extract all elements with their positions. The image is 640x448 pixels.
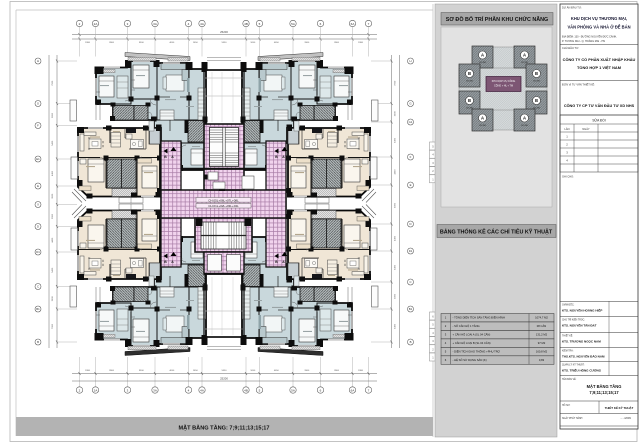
svg-text:4050: 4050: [274, 370, 280, 372]
svg-text:....../2009: ....../2009: [620, 416, 631, 420]
svg-text:5A: 5A: [291, 22, 295, 26]
svg-text:5400: 5400: [395, 264, 397, 270]
svg-text:4A: 4A: [200, 22, 204, 26]
svg-text:0,83: 0,83: [539, 358, 545, 362]
svg-text:X: X: [37, 203, 39, 207]
svg-text:F: F: [37, 124, 39, 128]
svg-text:1650: 1650: [193, 42, 199, 44]
svg-text:GIÁM ĐỐC:: GIÁM ĐỐC:: [562, 303, 575, 306]
svg-text:G: G: [409, 102, 411, 106]
svg-text:B: B: [535, 98, 538, 103]
svg-text:7;9;11;13;15;17: 7;9;11;13;15;17: [589, 390, 619, 395]
svg-text:5400: 5400: [395, 323, 397, 329]
svg-text:E1: E1: [36, 157, 40, 161]
svg-text:D: D: [409, 222, 411, 226]
svg-text:C: C: [409, 280, 411, 284]
svg-text:CHỦ TRÌ KIẾN TRÚC:: CHỦ TRÌ KIẾN TRÚC:: [562, 319, 585, 322]
svg-text:VĂN PHÒNG VÀ NHÀ Ở ĐỂ BÁN: VĂN PHÒNG VÀ NHÀ Ở ĐỂ BÁN: [567, 25, 630, 30]
svg-text:1980: 1980: [358, 42, 364, 44]
svg-text:1074,7 M2: 1074,7 M2: [535, 316, 548, 320]
svg-text:7000: 7000: [395, 80, 397, 86]
svg-text:1980: 1980: [85, 42, 91, 44]
svg-text:A: A: [481, 53, 484, 58]
svg-text:4B: 4B: [244, 22, 248, 26]
svg-text:25200: 25200: [220, 377, 228, 381]
svg-text:3000: 3000: [395, 293, 397, 299]
svg-text:KTS. TRIỆU HỒNG CƯỜNG: KTS. TRIỆU HỒNG CƯỜNG: [562, 368, 602, 373]
svg-text:D: D: [37, 225, 39, 229]
svg-text:4050: 4050: [169, 42, 175, 44]
svg-text:131,2M2: 131,2M2: [521, 125, 528, 127]
svg-text:B1: B1: [36, 307, 40, 311]
svg-text:1980: 1980: [358, 370, 364, 372]
svg-text:D1: D1: [409, 249, 413, 253]
svg-text:C: C: [37, 285, 39, 289]
svg-text:CÔNG TY CỔ PHẦN XUẤT NHẬP KHẨU: CÔNG TY CỔ PHẦN XUẤT NHẬP KHẨU: [563, 57, 636, 62]
svg-text:1980: 1980: [85, 370, 91, 372]
svg-text:E: E: [37, 184, 39, 188]
svg-text:08 CĂN: 08 CĂN: [537, 324, 546, 328]
svg-text:131,2 M2: 131,2 M2: [536, 333, 548, 337]
svg-text:SƠ ĐỒ BỐ TRÍ PHÂN KHU CHỨC NĂN: SƠ ĐỒ BỐ TRÍ PHÂN KHU CHỨC NĂNG: [446, 15, 549, 23]
svg-text:25200: 25200: [220, 30, 228, 34]
svg-text:THS.KTS. NGUYỄN ĐÀO NAM: THS.KTS. NGUYỄN ĐÀO NAM: [562, 354, 605, 359]
svg-text:CỘNG + HL + TM: CỘNG + HL + TM: [494, 85, 513, 88]
svg-text:5400: 5400: [52, 140, 54, 146]
svg-text:3600: 3600: [52, 296, 54, 302]
svg-text:ĐỊA ĐIỂM: 130 - ĐƯỜNG NGUYỄN: ĐỊA ĐIỂM: 130 - ĐƯỜNG NGUYỄN ĐỨC CẢNH,: [562, 36, 617, 39]
svg-text:4400: 4400: [395, 235, 397, 241]
svg-text:3900: 3900: [109, 370, 115, 372]
svg-text:THIẾT KẾ:: THIẾT KẾ:: [562, 334, 573, 337]
svg-text:6A: 6A: [351, 388, 355, 392]
svg-text:6000: 6000: [395, 202, 397, 208]
svg-text:B: B: [410, 340, 412, 344]
svg-text:4400: 4400: [395, 169, 397, 175]
svg-text:3600: 3600: [52, 112, 54, 118]
svg-text:3900: 3900: [334, 42, 340, 44]
svg-text:2A: 2A: [94, 22, 98, 26]
svg-text:BẢNG THỐNG KÊ CÁC CHỈ TIÊU KỸ: BẢNG THỐNG KÊ CÁC CHỈ TIÊU KỸ THUẬT: [440, 228, 553, 236]
svg-text:HỒ SƠ:: HỒ SƠ:: [562, 404, 571, 407]
svg-text:MẶT BẰNG TẦNG: 7;9;11;13;15;17: MẶT BẰNG TẦNG: 7;9;11;13;15;17: [178, 424, 269, 432]
svg-text:P. TƯƠNG MAI - Q. HOÀNG MAI -: P. TƯƠNG MAI - Q. HOÀNG MAI - HN: [562, 40, 605, 43]
svg-text:CH.01L+02L+03L+04L: CH.01L+02L+03L+04L: [208, 204, 239, 208]
svg-text:5350: 5350: [222, 370, 228, 372]
svg-text:D1: D1: [36, 250, 40, 254]
svg-text:6A: 6A: [351, 22, 355, 26]
svg-text:5A: 5A: [291, 388, 295, 392]
svg-text:A: A: [481, 116, 484, 121]
svg-text:DỰ ÁN ĐẦU TƯ:: DỰ ÁN ĐẦU TƯ:: [562, 6, 582, 10]
svg-text:A: A: [523, 116, 526, 121]
svg-text:3000: 3000: [52, 193, 54, 199]
svg-text:CH.05L+06L+07L+08L: CH.05L+06L+07L+08L: [208, 198, 239, 202]
svg-text:NGÀY PHÁT HÀNH:: NGÀY PHÁT HÀNH:: [562, 417, 583, 420]
svg-text:3300: 3300: [139, 370, 145, 372]
svg-text:131,2M2: 131,2M2: [466, 81, 473, 83]
svg-text:KIỂM TRA:: KIỂM TRA:: [562, 350, 574, 353]
svg-text:3000: 3000: [395, 111, 397, 117]
svg-text:QUẢN LÝ KỸ THUẬT:: QUẢN LÝ KỸ THUẬT:: [562, 364, 585, 367]
svg-text:TÊN BẢN VẼ:: TÊN BẢN VẼ:: [562, 378, 577, 381]
svg-text:3900: 3900: [334, 370, 340, 372]
svg-text:7000: 7000: [52, 323, 54, 329]
svg-text:4B: 4B: [244, 388, 248, 392]
svg-text:4050: 4050: [274, 42, 280, 44]
svg-text:CÔNG TY CP TƯ VẤN ĐẦU TƯ XD NH: CÔNG TY CP TƯ VẤN ĐẦU TƯ XD NHS: [564, 103, 635, 108]
svg-text:KHU DỊCH VỤ THƯƠNG MẠI,: KHU DỊCH VỤ THƯƠNG MẠI,: [571, 16, 627, 21]
svg-text:E: E: [410, 183, 412, 187]
svg-text:5400: 5400: [52, 267, 54, 273]
svg-text:F: F: [410, 155, 412, 159]
svg-text:3300: 3300: [304, 370, 310, 372]
svg-text:4400: 4400: [52, 237, 54, 243]
svg-text:THIẾT KẾ KỸ THUẬT: THIẾT KẾ KỸ THUẬT: [605, 405, 634, 410]
svg-text:3A: 3A: [153, 22, 157, 26]
svg-text:4050: 4050: [169, 370, 175, 372]
svg-text:B1: B1: [409, 307, 413, 311]
svg-text:A: A: [523, 53, 526, 58]
svg-text:B: B: [535, 71, 538, 76]
svg-text:KTS. TRƯƠNG NGỌC NAM: KTS. TRƯƠNG NGỌC NAM: [562, 339, 601, 343]
svg-text:3000: 3000: [52, 213, 54, 219]
svg-text:131,2M2: 131,2M2: [479, 125, 486, 127]
svg-text:1650: 1650: [193, 370, 199, 372]
svg-text:3300: 3300: [304, 42, 310, 44]
svg-text:B: B: [37, 340, 39, 344]
svg-text:1650: 1650: [250, 42, 256, 44]
svg-text:H: H: [409, 59, 411, 63]
svg-text:160,8 M2: 160,8 M2: [536, 350, 548, 354]
svg-text:3900: 3900: [109, 42, 115, 44]
svg-text:SỬA ĐỔI: SỬA ĐỔI: [592, 118, 605, 123]
svg-text:5350: 5350: [222, 42, 228, 44]
svg-text:B: B: [468, 71, 471, 76]
svg-text:2A: 2A: [94, 388, 98, 392]
svg-text:B: B: [468, 98, 471, 103]
svg-text:5400: 5400: [395, 137, 397, 143]
svg-text:TỔNG HỢP 1 VIỆT NAM: TỔNG HỢP 1 VIỆT NAM: [577, 65, 621, 70]
svg-text:NGÀY: NGÀY: [582, 127, 590, 131]
svg-text:131,2M2: 131,2M2: [533, 81, 540, 83]
svg-text:G1: G1: [409, 120, 413, 124]
svg-text:97 M2: 97 M2: [538, 341, 546, 345]
svg-text:1650: 1650: [250, 370, 256, 372]
svg-text:H: H: [37, 59, 39, 63]
svg-text:KHU DỊCH VỤ CÔNG: KHU DỊCH VỤ CÔNG: [492, 80, 516, 83]
svg-text:3300: 3300: [139, 42, 145, 44]
svg-text:LẦN: LẦN: [564, 127, 569, 131]
svg-text:KTS. NGUYỄN HOÀNG HIỆP: KTS. NGUYỄN HOÀNG HIỆP: [562, 307, 602, 312]
svg-text:MẶT BẰNG TẦNG: MẶT BẰNG TẦNG: [587, 384, 622, 389]
svg-text:4400: 4400: [52, 170, 54, 176]
svg-text:7000: 7000: [52, 80, 54, 86]
svg-text:KTS. NGUYỄN TẤN ĐẠT: KTS. NGUYỄN TẤN ĐẠT: [562, 323, 597, 328]
svg-text:G: G: [37, 102, 39, 106]
svg-text:4A: 4A: [200, 388, 204, 392]
svg-text:3A: 3A: [153, 388, 157, 392]
